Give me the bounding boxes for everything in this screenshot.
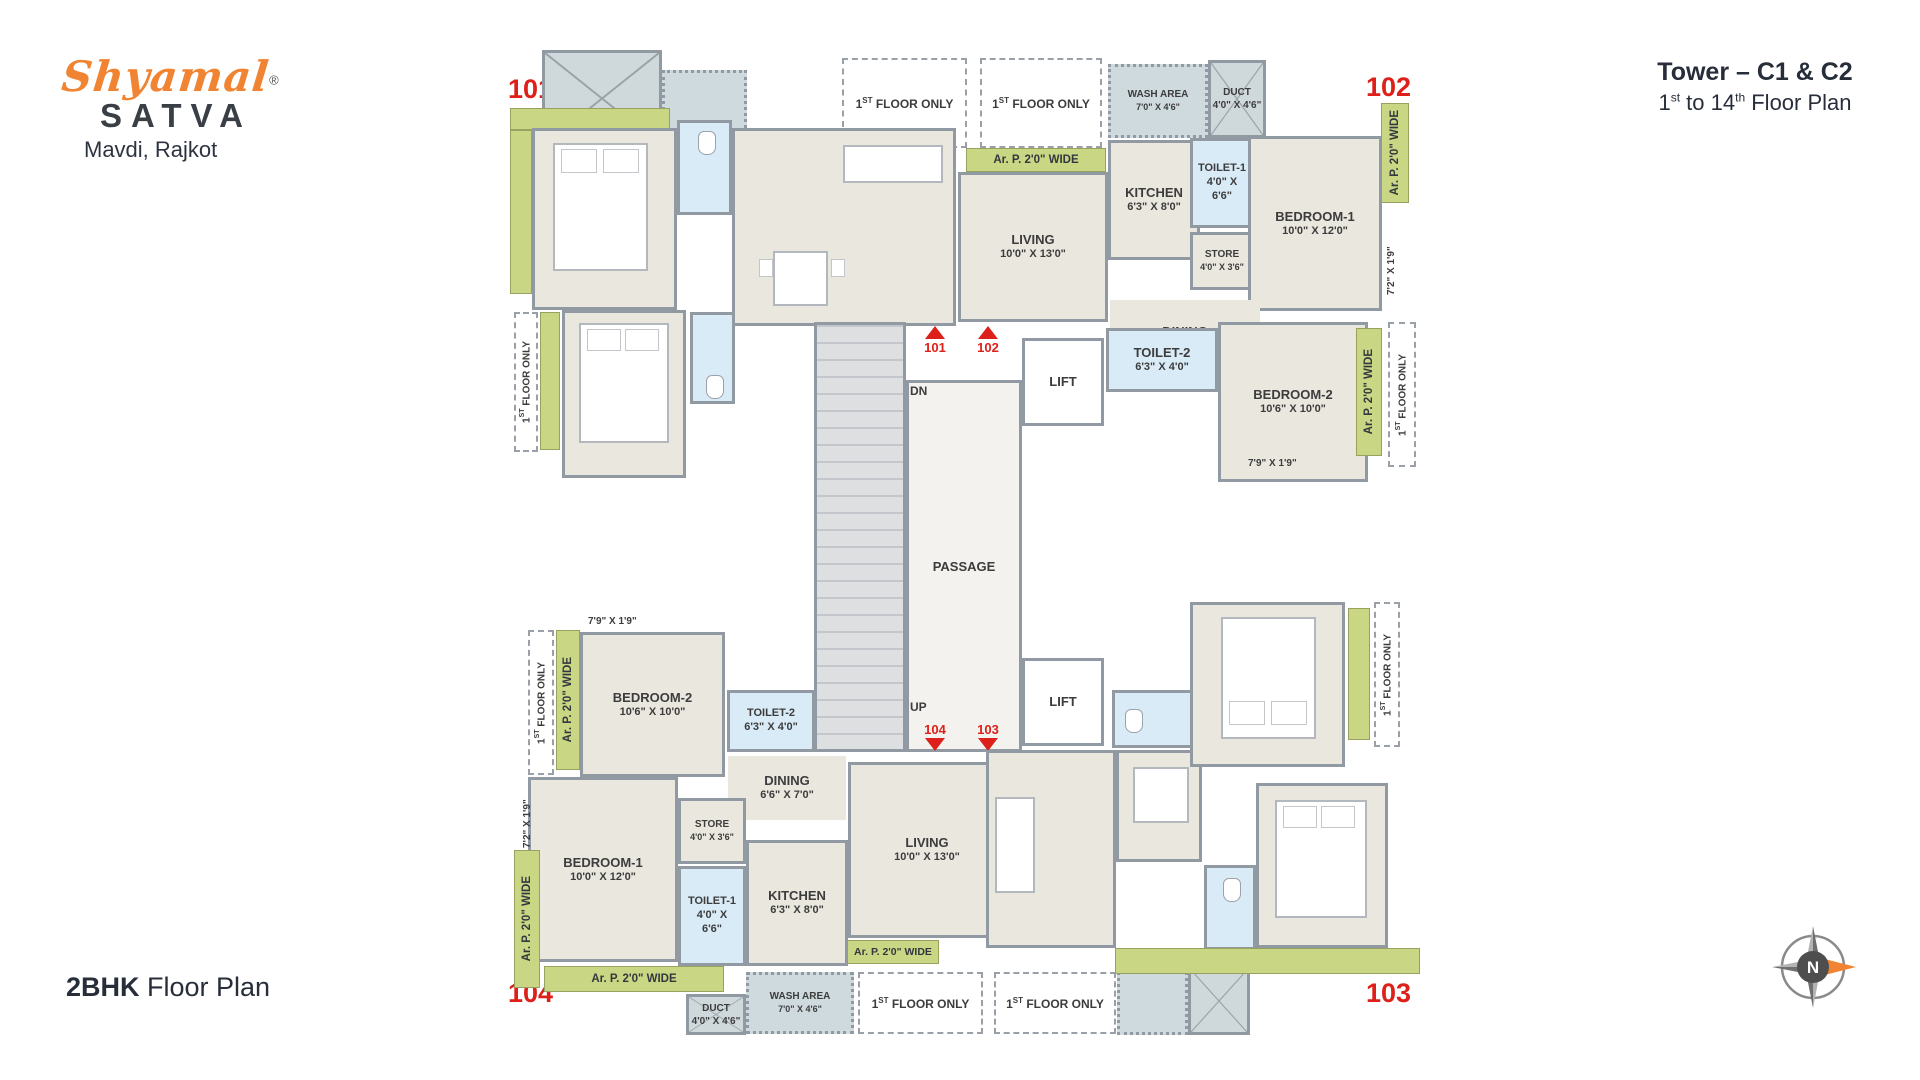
toilet-icon	[1223, 878, 1241, 902]
staircase	[814, 322, 906, 752]
living-dining-101	[732, 128, 956, 326]
toilet-101-b	[690, 312, 735, 404]
first-floor-only-box: 1ST FLOOR ONLY	[980, 58, 1102, 148]
kitchen-102: KITCHEN 6'3" X 8'0"	[1108, 140, 1200, 260]
bedroom-101-a	[532, 128, 677, 310]
duct-label: DUCT4'0" X 4'6"	[1211, 63, 1263, 135]
plan-title-block: Tower – C1 & C2 1st to 14th Floor Plan	[1645, 58, 1865, 116]
living-102: LIVING 10'0" X 13'0"	[958, 172, 1108, 322]
entry-arrow-icon	[978, 326, 998, 339]
balcony-strip	[1348, 608, 1370, 740]
tower-title: Tower – C1 & C2	[1645, 58, 1865, 87]
brand-script-name: Shyamal	[59, 52, 271, 101]
brand-logo: Shyamal® SATVA Mavdi, Rajkot	[62, 52, 302, 163]
toilet-icon	[698, 131, 716, 155]
kitchen-104: KITCHEN 6'3" X 8'0"	[746, 840, 848, 966]
stair-up-label: UP	[910, 700, 927, 714]
bedroom-103-a	[1190, 602, 1345, 767]
arcade-projection-strip: Ar. P. 2'0" WIDE	[966, 148, 1106, 172]
duct-label: DUCT4'0" X 4'6"	[689, 997, 743, 1032]
brand-name: SATVA	[100, 97, 302, 135]
toilet2-103	[1112, 690, 1202, 748]
pillow-icon	[1271, 701, 1307, 725]
unit-number-102: 102	[1366, 72, 1411, 103]
registered-mark: ®	[269, 73, 279, 88]
duct-104: DUCT4'0" X 4'6"	[686, 994, 746, 1035]
toilet2-102: TOILET-2 6'3" X 4'0"	[1106, 328, 1218, 392]
wash-area-104: WASH AREA 7'0" X 4'6"	[746, 972, 854, 1034]
bedroom-101-b	[562, 310, 686, 478]
wash-area-102: WASH AREA 7'0" X 4'6"	[1108, 64, 1208, 138]
niche-dimension: 7'2" X 1'9"	[1386, 215, 1397, 295]
entry-marker-101: 101	[915, 326, 955, 355]
chair-icon	[759, 259, 773, 277]
arcade-projection-strip: Ar. P. 2'0" WIDE	[847, 940, 939, 964]
unit-number-103: 103	[1366, 978, 1411, 1009]
first-floor-only-box: 1ST FLOOR ONLY	[1388, 322, 1416, 467]
first-floor-only-box: 1ST FLOOR ONLY	[528, 630, 554, 775]
niche-dimension: 7'2" X 1'9"	[522, 768, 533, 848]
pillow-icon	[1283, 806, 1317, 828]
lift-top: LIFT	[1022, 338, 1104, 426]
first-floor-only-box: 1ST FLOOR ONLY	[994, 972, 1116, 1034]
entry-arrow-icon	[925, 326, 945, 339]
balcony-strip	[1115, 948, 1420, 974]
sofa-icon	[995, 797, 1035, 893]
stair-down-label: DN	[910, 384, 927, 398]
balcony-dimension: 7'9" X 1'9"	[588, 616, 637, 627]
duct-102: DUCT4'0" X 4'6"	[1208, 60, 1266, 138]
entry-marker-102: 102	[968, 326, 1008, 355]
pillow-icon	[1321, 806, 1355, 828]
toilet1-104: TOILET-1 4'0" X 6'6"	[678, 866, 746, 966]
first-floor-only-box: 1ST FLOOR ONLY	[514, 312, 538, 452]
stair-duct-hatch-bottom	[1188, 967, 1250, 1035]
toilet-101-a	[677, 120, 732, 215]
arcade-projection-strip: Ar. P. 2'0" WIDE	[556, 630, 580, 770]
balcony-strip	[510, 130, 532, 294]
dining-table-icon	[773, 251, 828, 306]
first-floor-only-box: 1ST FLOOR ONLY	[1374, 602, 1400, 747]
entry-marker-103: 103	[968, 722, 1008, 751]
sofa-icon	[843, 145, 943, 183]
dining-table-icon	[1133, 767, 1189, 823]
entry-marker-104: 104	[915, 722, 955, 751]
arcade-projection-strip: Ar. P. 2'0" WIDE	[1381, 103, 1409, 203]
toilet1-102: TOILET-1 4'0" X 6'6"	[1190, 138, 1254, 228]
balcony-dimension: 7'9" X 1'9"	[1248, 458, 1297, 469]
chair-icon	[831, 259, 845, 277]
pillow-icon	[603, 149, 639, 173]
store-102: STORE 4'0" X 3'6"	[1190, 232, 1254, 290]
bedroom2-104: BEDROOM-2 10'6" X 10'0"	[580, 632, 725, 777]
bedroom1-102: BEDROOM-1 10'0" X 12'0"	[1248, 136, 1382, 311]
entry-arrow-icon	[925, 738, 945, 751]
living-104: LIVING 10'0" X 13'0"	[848, 762, 1006, 938]
arcade-projection-strip: Ar. P. 2'0" WIDE	[1356, 328, 1382, 456]
balcony-strip	[540, 312, 560, 450]
lift-bottom: LIFT	[1022, 658, 1104, 746]
plan-type-label: 2BHK Floor Plan	[66, 972, 270, 1003]
arcade-projection-strip: Ar. P. 2'0" WIDE	[514, 850, 540, 988]
compass-north-letter: N	[1807, 958, 1819, 977]
pillow-icon	[1229, 701, 1265, 725]
pillow-icon	[587, 329, 621, 351]
toilet-icon	[1125, 709, 1143, 733]
pillow-icon	[625, 329, 659, 351]
store-104: STORE 4'0" X 3'6"	[678, 798, 746, 864]
floor-range-subtitle: 1st to 14th Floor Plan	[1645, 90, 1865, 116]
brand-location: Mavdi, Rajkot	[84, 137, 302, 163]
wash-area-103	[1117, 967, 1188, 1035]
balcony-strip	[510, 108, 670, 130]
toilet2-104: TOILET-2 6'3" X 4'0"	[727, 690, 815, 752]
toilet1-103	[1204, 865, 1256, 950]
north-compass-icon: N	[1766, 920, 1860, 1014]
arcade-projection-strip: Ar. P. 2'0" WIDE	[544, 966, 724, 992]
pillow-icon	[561, 149, 597, 173]
bedroom1-104: BEDROOM-1 10'0" X 12'0"	[528, 777, 678, 962]
passage: PASSAGE	[906, 380, 1022, 752]
floor-plan: 101 102 103 104 1ST FLOOR ONLY 1ST FLOOR…	[500, 50, 1420, 1035]
bedroom-103-b	[1256, 783, 1388, 948]
first-floor-only-box: 1ST FLOOR ONLY	[858, 972, 983, 1034]
toilet-icon	[706, 375, 724, 399]
living-dining-103	[986, 750, 1116, 948]
